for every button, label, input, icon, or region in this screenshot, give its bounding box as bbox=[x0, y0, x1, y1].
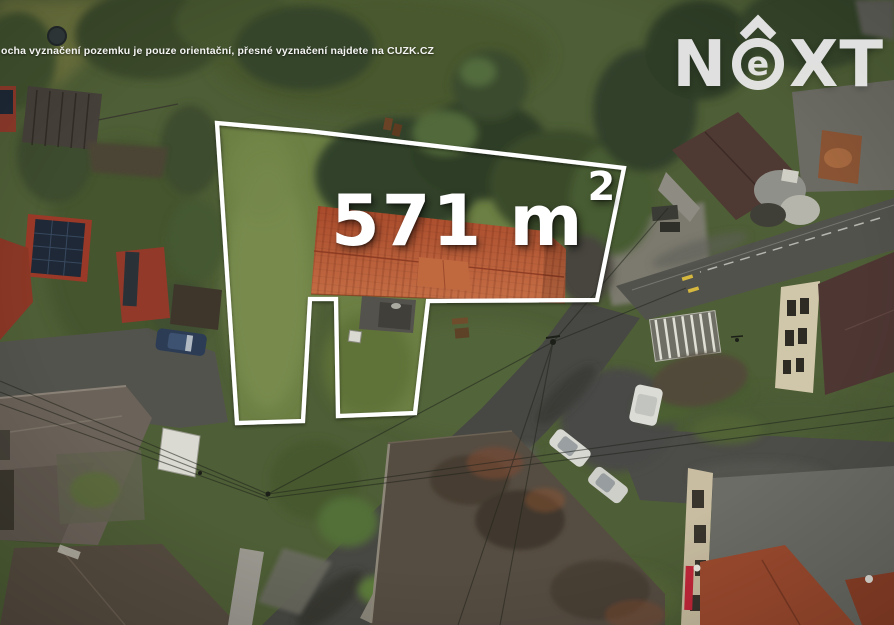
logo-letter-n: N bbox=[672, 40, 727, 91]
area-label: 571 m2 bbox=[331, 186, 617, 256]
logo-e-ring: e bbox=[732, 38, 784, 90]
aerial-photo bbox=[0, 0, 894, 625]
logo-caret-icon bbox=[740, 15, 777, 52]
logo-letter-x: X bbox=[789, 40, 839, 91]
disclaimer-text: ocha vyznačení pozemku je pouze orientač… bbox=[1, 45, 434, 57]
promo-image: ocha vyznačení pozemku je pouze orientač… bbox=[0, 0, 894, 625]
area-exponent: 2 bbox=[587, 164, 617, 210]
logo-letter-t: T bbox=[839, 40, 884, 91]
logo-letter-e: e bbox=[747, 47, 769, 80]
vignette bbox=[0, 0, 894, 625]
area-value: 571 m bbox=[331, 180, 584, 262]
brand-logo: N e X T bbox=[672, 12, 884, 91]
